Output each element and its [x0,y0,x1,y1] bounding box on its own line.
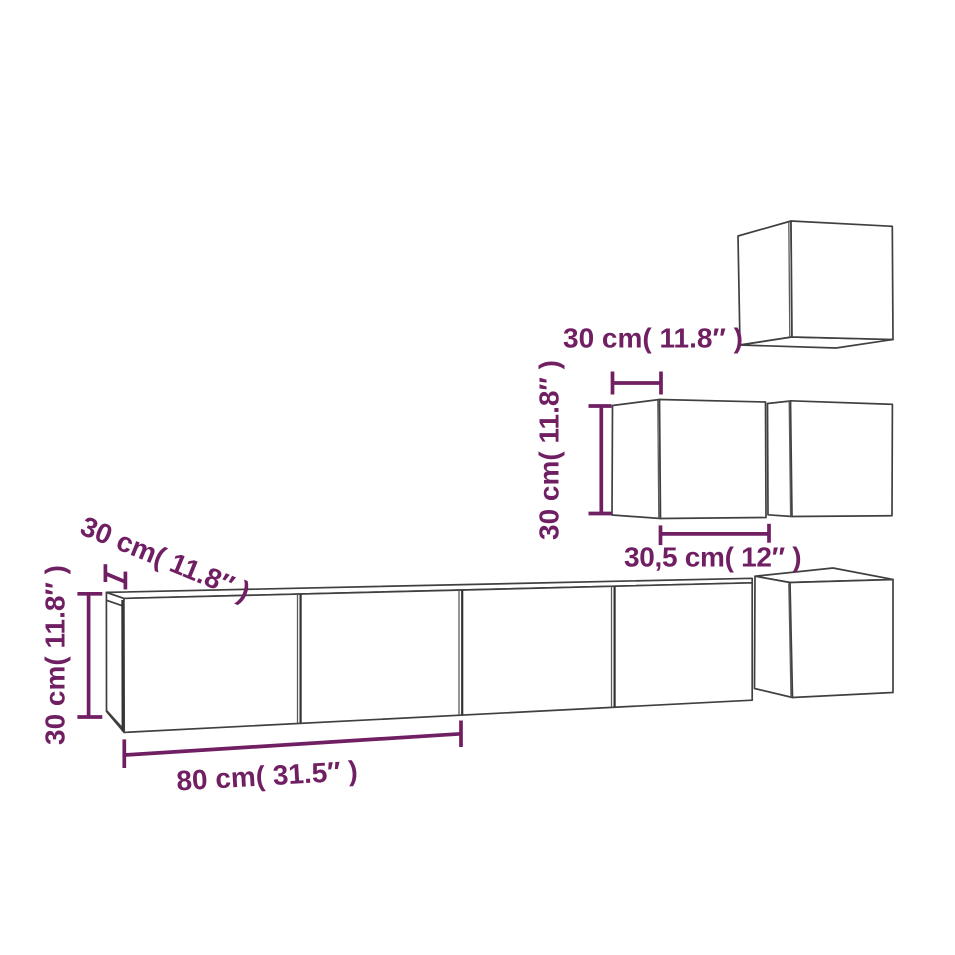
svg-text:80 cm( 31.5″ ): 80 cm( 31.5″ ) [176,755,359,796]
svg-text:30 cm( 11.8″ ): 30 cm( 11.8″ ) [40,565,71,745]
svg-text:30,5 cm( 12″ ): 30,5 cm( 12″ ) [624,542,801,573]
svg-text:30 cm( 11.8″ ): 30 cm( 11.8″ ) [534,360,565,540]
svg-text:30 cm( 11.8″ ): 30 cm( 11.8″ ) [563,323,743,354]
